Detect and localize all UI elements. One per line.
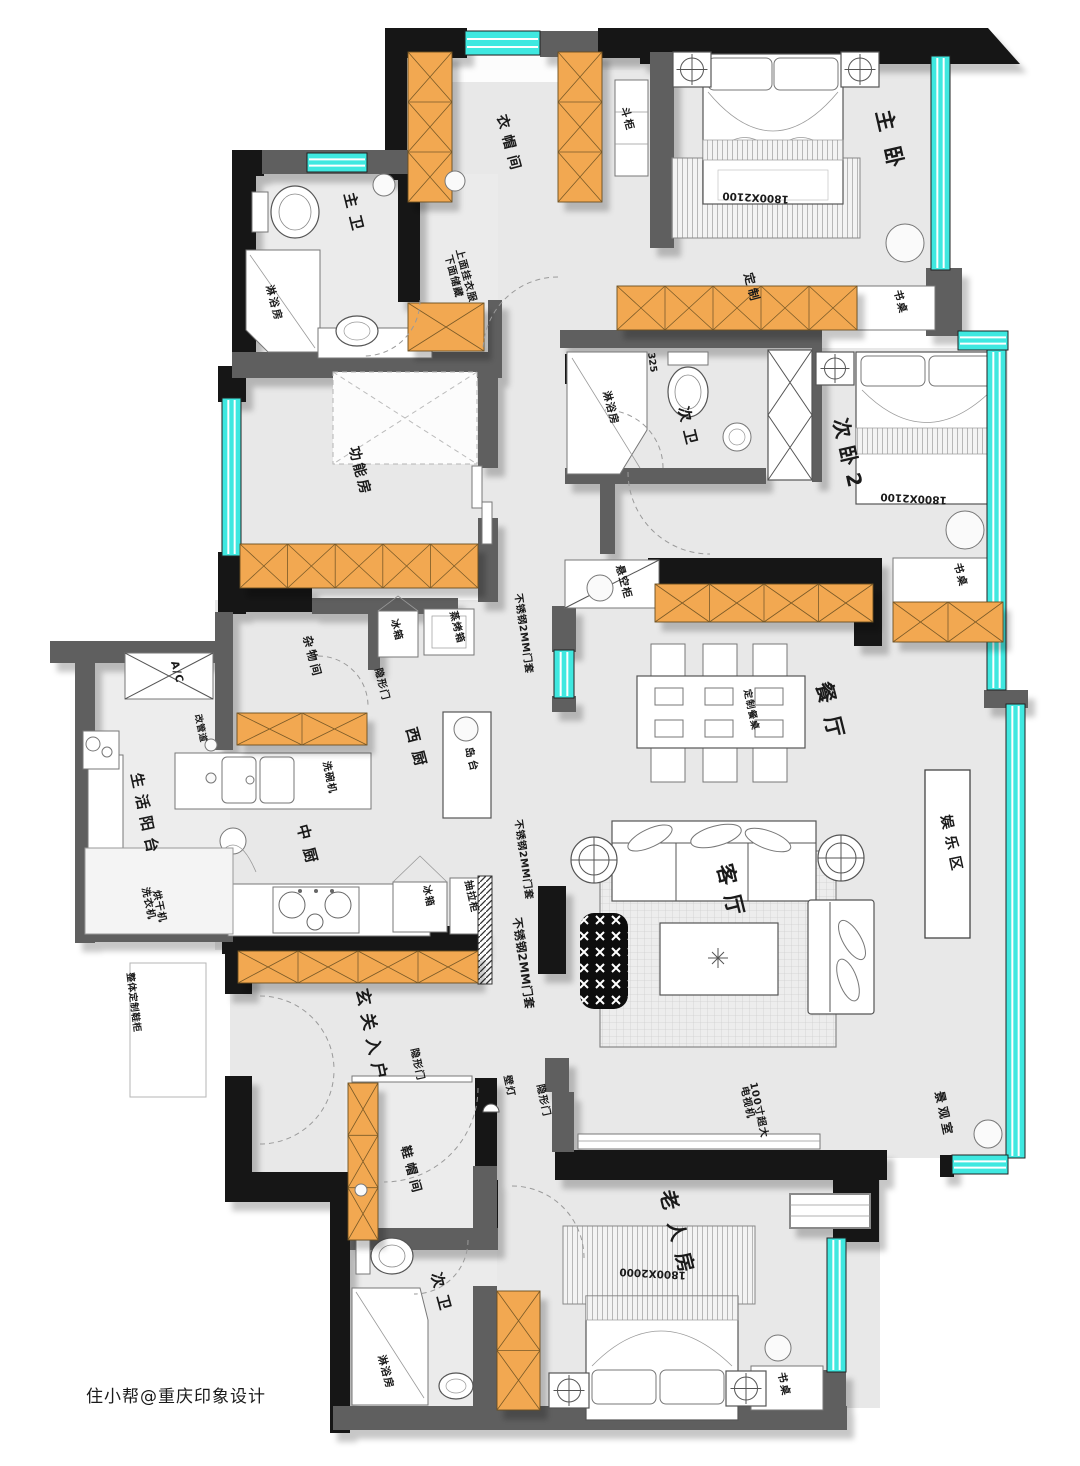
window-glass bbox=[827, 1238, 846, 1372]
window-glass bbox=[958, 331, 1008, 350]
label-zheng-ti-xie-gui: 整体定制鞋柜 bbox=[124, 971, 143, 1033]
window-glass bbox=[222, 398, 241, 556]
label-watermark: 住小帮@重庆印象设计 bbox=[86, 1387, 266, 1407]
tv-100inch bbox=[578, 1134, 820, 1149]
floor-plan-page: 主卧衣帽间主卫功能房次卧2次卫餐厅客厅娱乐区西厨中厨生活阳台杂物间玄关入户鞋帽间… bbox=[0, 0, 1080, 1466]
round-item bbox=[373, 174, 395, 196]
round-item bbox=[445, 171, 465, 191]
round-item bbox=[765, 1335, 791, 1361]
round-item bbox=[946, 511, 984, 549]
round-item bbox=[974, 1120, 1002, 1148]
dining-set bbox=[637, 644, 805, 782]
window-glass bbox=[931, 56, 950, 270]
window-glass bbox=[465, 31, 540, 55]
round-item bbox=[587, 575, 613, 601]
bedroom2-bed bbox=[856, 352, 996, 504]
round-item bbox=[206, 773, 216, 783]
window-glass bbox=[307, 153, 367, 172]
round-item bbox=[355, 1184, 367, 1196]
window-glass bbox=[554, 650, 574, 698]
window-glass bbox=[1006, 704, 1025, 1158]
round-item bbox=[886, 224, 924, 262]
window-glass bbox=[952, 1155, 1008, 1174]
round-item bbox=[454, 717, 478, 741]
floor-plan-canvas: 主卧衣帽间主卫功能房次卧2次卫餐厅客厅娱乐区西厨中厨生活阳台杂物间玄关入户鞋帽间… bbox=[0, 0, 1080, 1466]
